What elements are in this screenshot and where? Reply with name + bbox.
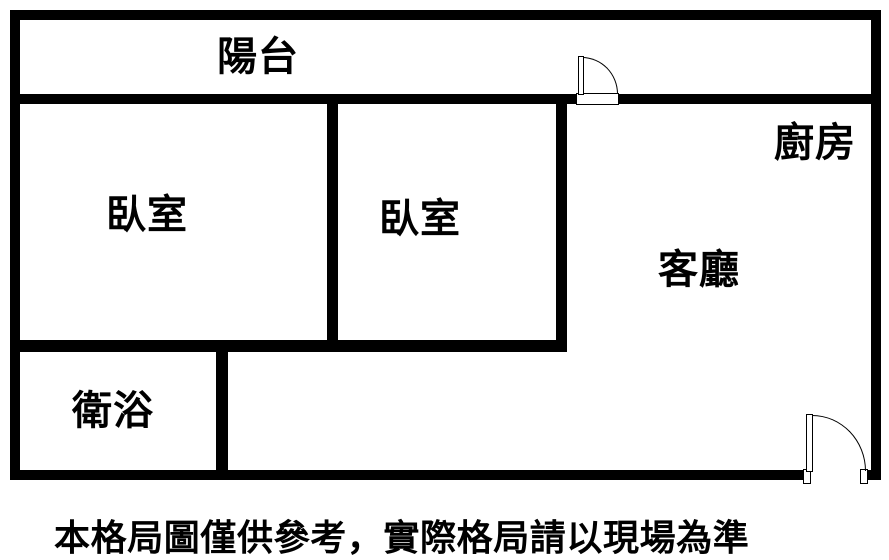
entry-door-jamb-right xyxy=(860,469,868,484)
balcony-door-swing-arc-icon xyxy=(582,57,618,94)
wall-bedrooms-bottom xyxy=(20,340,567,352)
wall-outer-top xyxy=(10,10,881,20)
balcony-label: 陽台 xyxy=(173,34,343,80)
balcony-door-leaf-icon xyxy=(578,56,584,95)
kitchen-label: 廚房 xyxy=(730,120,889,166)
wall-balcony-left xyxy=(20,94,577,104)
living-room-label: 客廳 xyxy=(614,247,784,293)
wall-outer-left xyxy=(10,10,20,480)
entry-door-swing-arc-icon xyxy=(812,415,866,471)
wall-outer-bottom-right xyxy=(866,470,881,480)
bathroom-label: 衛浴 xyxy=(28,388,198,434)
bedroom-middle-label: 臥室 xyxy=(335,196,505,242)
bedroom-left-label: 臥室 xyxy=(62,192,232,238)
wall-outer-bottom-left xyxy=(10,470,806,480)
wall-balcony-right xyxy=(618,94,871,104)
wall-outer-right xyxy=(871,10,881,480)
disclaimer-text: 本格局圖僅供參考，實際格局請以現場為準 xyxy=(54,509,749,560)
entry-door-leaf-icon xyxy=(806,414,813,472)
floor-plan-canvas: 陽台 臥室 臥室 廚房 客廳 衛浴 本格局圖僅供參考，實際格局請以現場為準 xyxy=(0,0,889,560)
wall-bedroom2-right xyxy=(556,104,567,352)
wall-bathroom-right xyxy=(216,352,228,470)
